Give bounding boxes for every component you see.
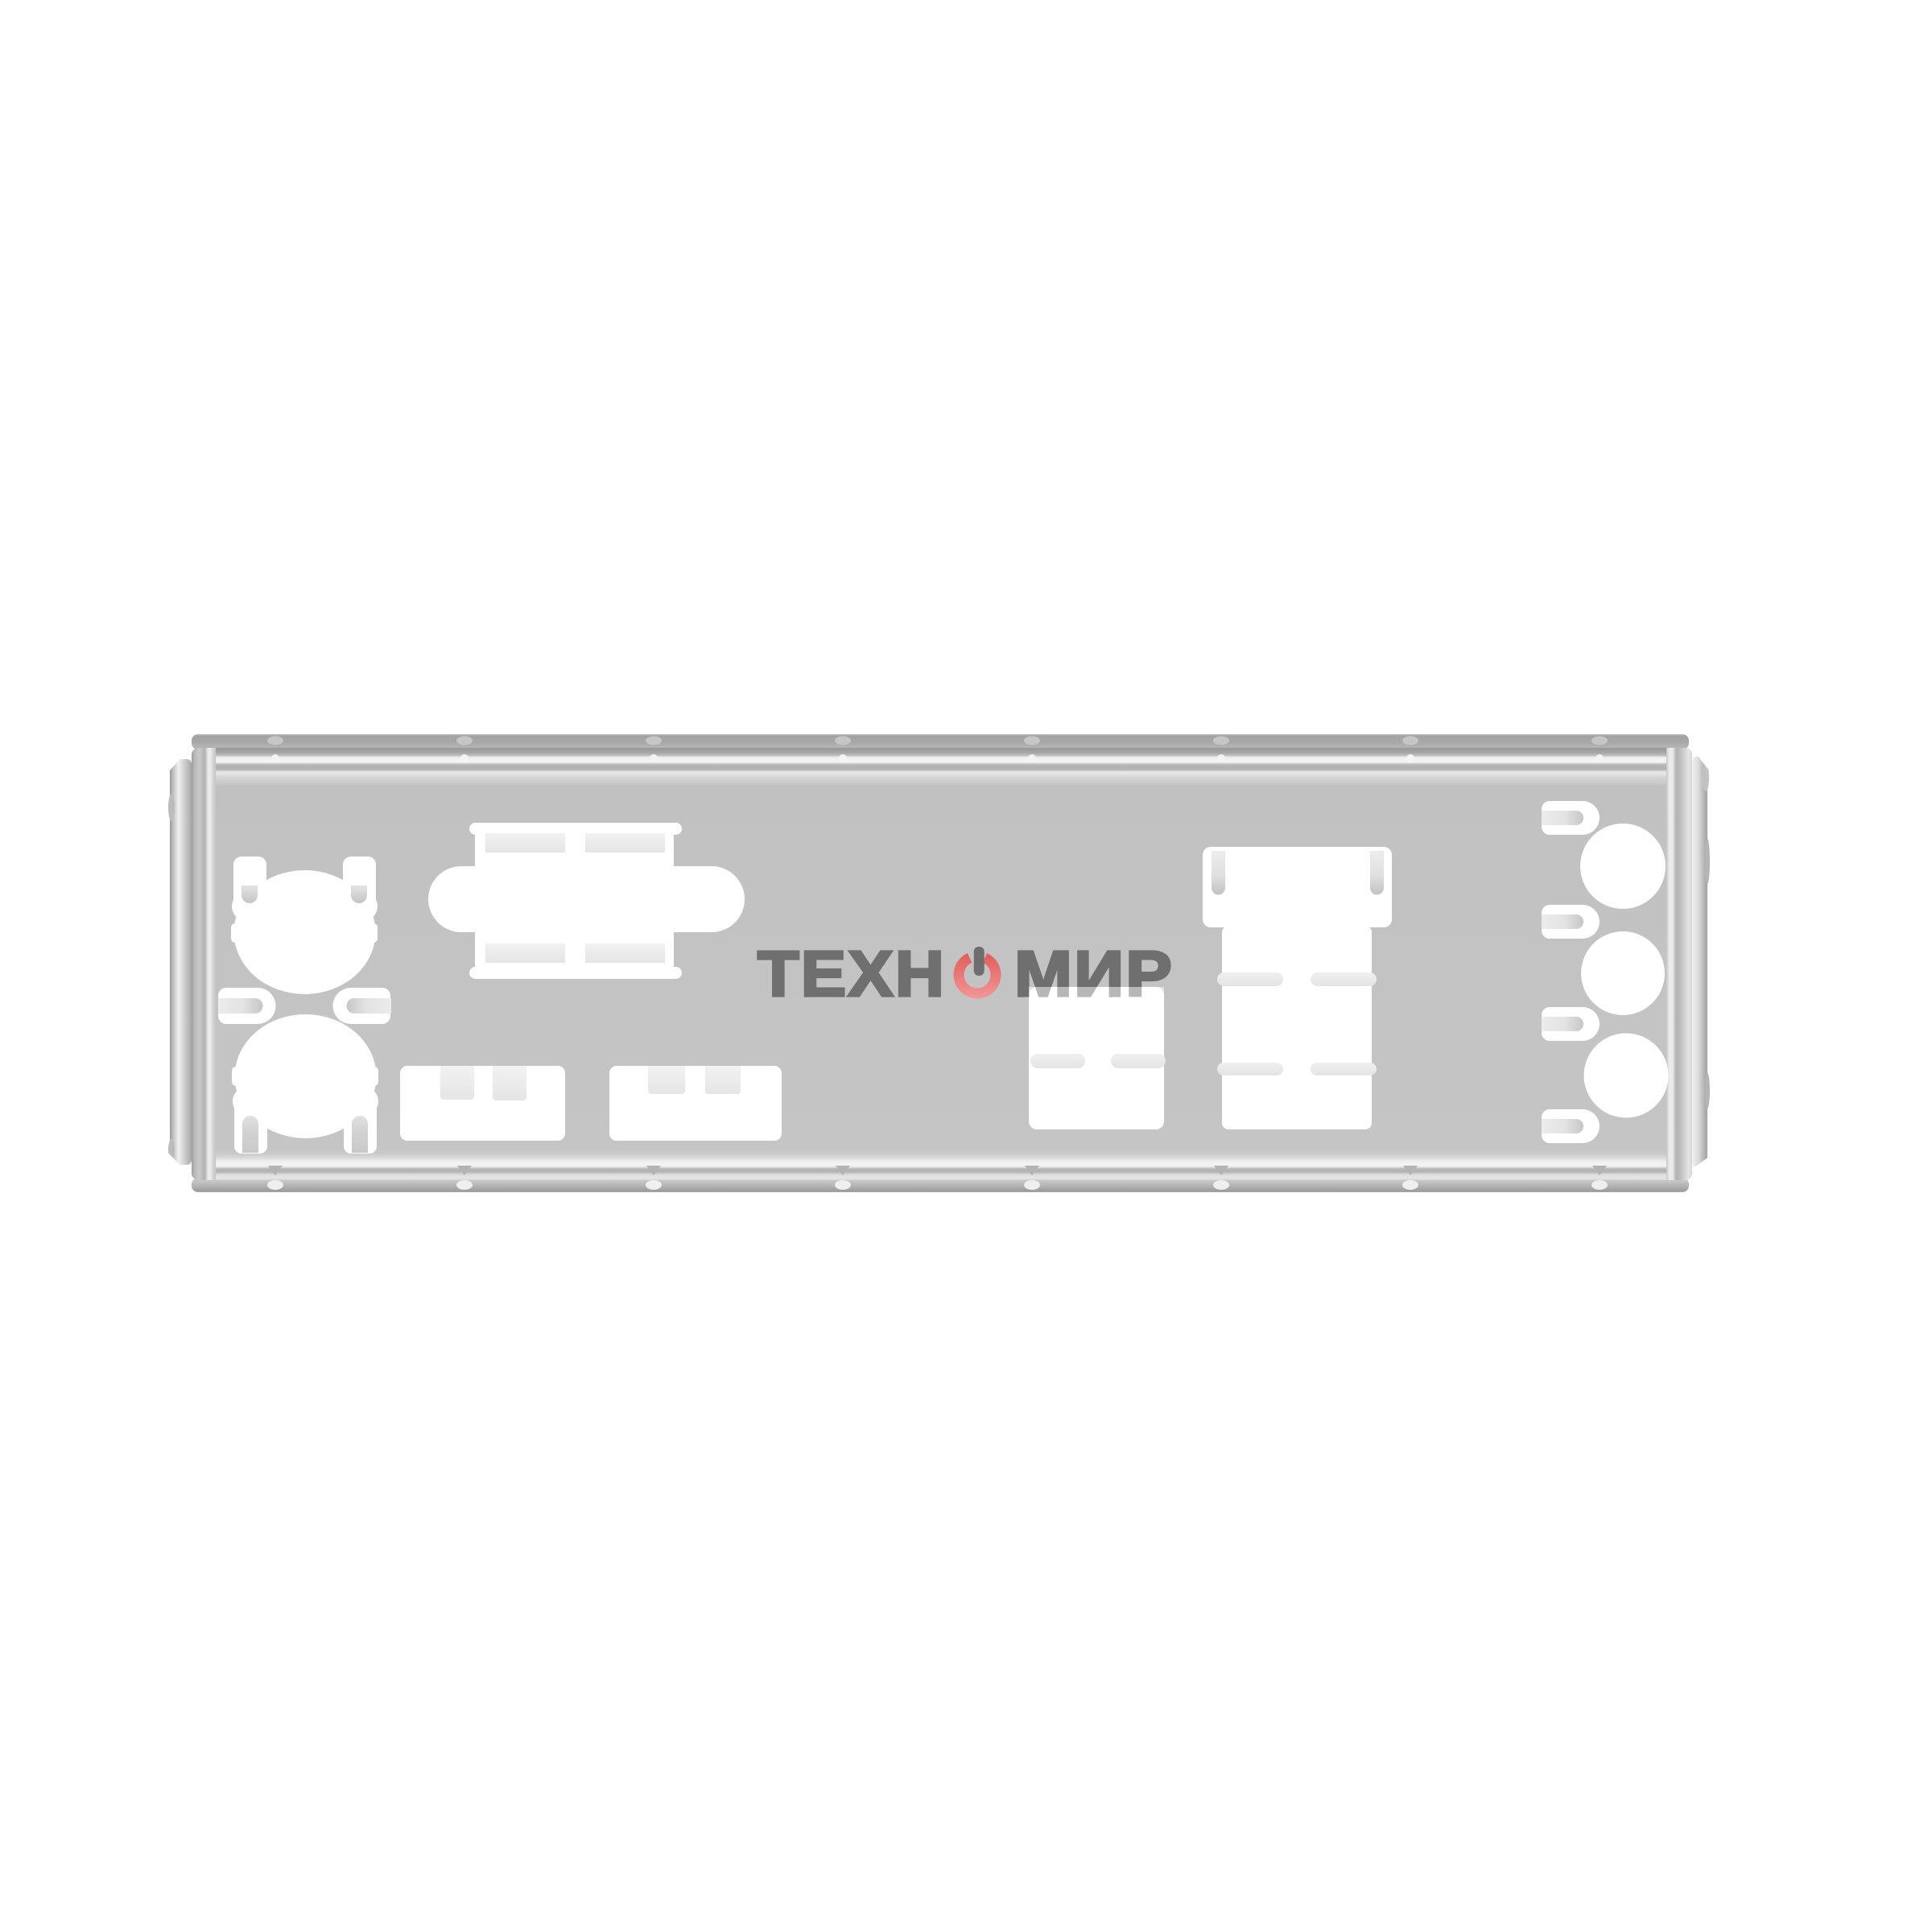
svg-text:ТЕХН: ТЕХН: [758, 938, 946, 1009]
svg-text:МИР: МИР: [1014, 938, 1174, 1009]
